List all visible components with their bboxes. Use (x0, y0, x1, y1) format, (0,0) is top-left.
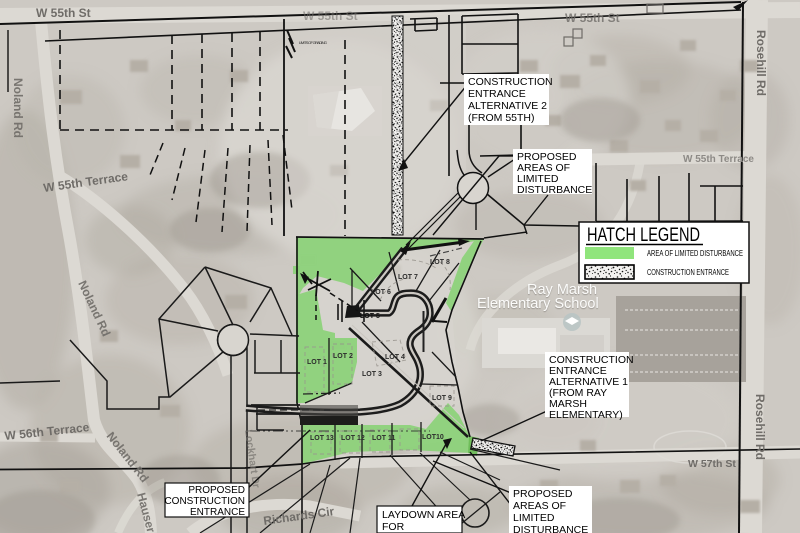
svg-text:W 55th St: W 55th St (565, 11, 620, 25)
svg-text:LOT 7: LOT 7 (398, 274, 418, 281)
svg-text:DISTURBANCE: DISTURBANCE (517, 184, 592, 196)
svg-text:W 55th Terrace: W 55th Terrace (683, 154, 754, 165)
svg-text:Rosehill Rd: Rosehill Rd (754, 30, 768, 96)
svg-text:LIMITED: LIMITED (513, 512, 555, 524)
svg-text:ELEMENTARY): ELEMENTARY) (549, 409, 623, 421)
svg-text:W 55th St: W 55th St (36, 6, 91, 20)
svg-text:FOR: FOR (382, 521, 405, 533)
svg-text:PROPOSED: PROPOSED (513, 488, 573, 500)
svg-text:ENTRANCE: ENTRANCE (468, 88, 526, 100)
svg-text:HATCH LEGEND: HATCH LEGEND (587, 225, 700, 246)
svg-text:Noland Rd: Noland Rd (11, 78, 25, 138)
svg-text:W 57th St: W 57th St (688, 458, 736, 470)
svg-text:CONSTRUCTION: CONSTRUCTION (164, 496, 245, 507)
svg-text:LAYDOWN AREA: LAYDOWN AREA (382, 509, 465, 521)
svg-text:LOT 3: LOT 3 (362, 371, 382, 378)
svg-text:ENTRANCE: ENTRANCE (190, 507, 245, 518)
svg-text:LOT 13: LOT 13 (310, 435, 334, 442)
svg-text:LOT 9: LOT 9 (432, 395, 452, 402)
svg-text:LOT 8: LOT 8 (430, 259, 450, 266)
svg-text:LOT 2: LOT 2 (333, 353, 353, 360)
svg-text:ALTERNATIVE 2: ALTERNATIVE 2 (468, 100, 547, 112)
svg-text:CONSTRUCTION: CONSTRUCTION (468, 76, 553, 88)
svg-text:(FROM 55TH): (FROM 55TH) (468, 112, 535, 124)
svg-text:AREAS OF: AREAS OF (513, 500, 566, 512)
svg-text:LOT 5: LOT 5 (360, 313, 380, 320)
svg-text:Rosehill Rd: Rosehill Rd (753, 394, 767, 460)
svg-text:PROPOSED: PROPOSED (188, 485, 245, 496)
svg-text:LOT 11: LOT 11 (372, 435, 395, 442)
svg-text:LOT 4: LOT 4 (385, 354, 405, 361)
svg-text:LIMITS OF GRADING: LIMITS OF GRADING (299, 40, 327, 45)
svg-text:AREA OF LIMITED DISTURBANCE: AREA OF LIMITED DISTURBANCE (647, 249, 743, 258)
svg-text:LOT 1: LOT 1 (307, 359, 327, 366)
svg-text:DISTURBANCE: DISTURBANCE (513, 524, 588, 533)
svg-text:LOT 12: LOT 12 (341, 435, 365, 442)
svg-text:W 55th St: W 55th St (303, 9, 358, 23)
svg-text:LOT 6: LOT 6 (371, 289, 391, 296)
svg-text:LOT10: LOT10 (422, 434, 444, 441)
svg-text:Elementary School: Elementary School (477, 296, 599, 312)
svg-text:CONSTRUCTION ENTRANCE: CONSTRUCTION ENTRANCE (647, 268, 729, 277)
